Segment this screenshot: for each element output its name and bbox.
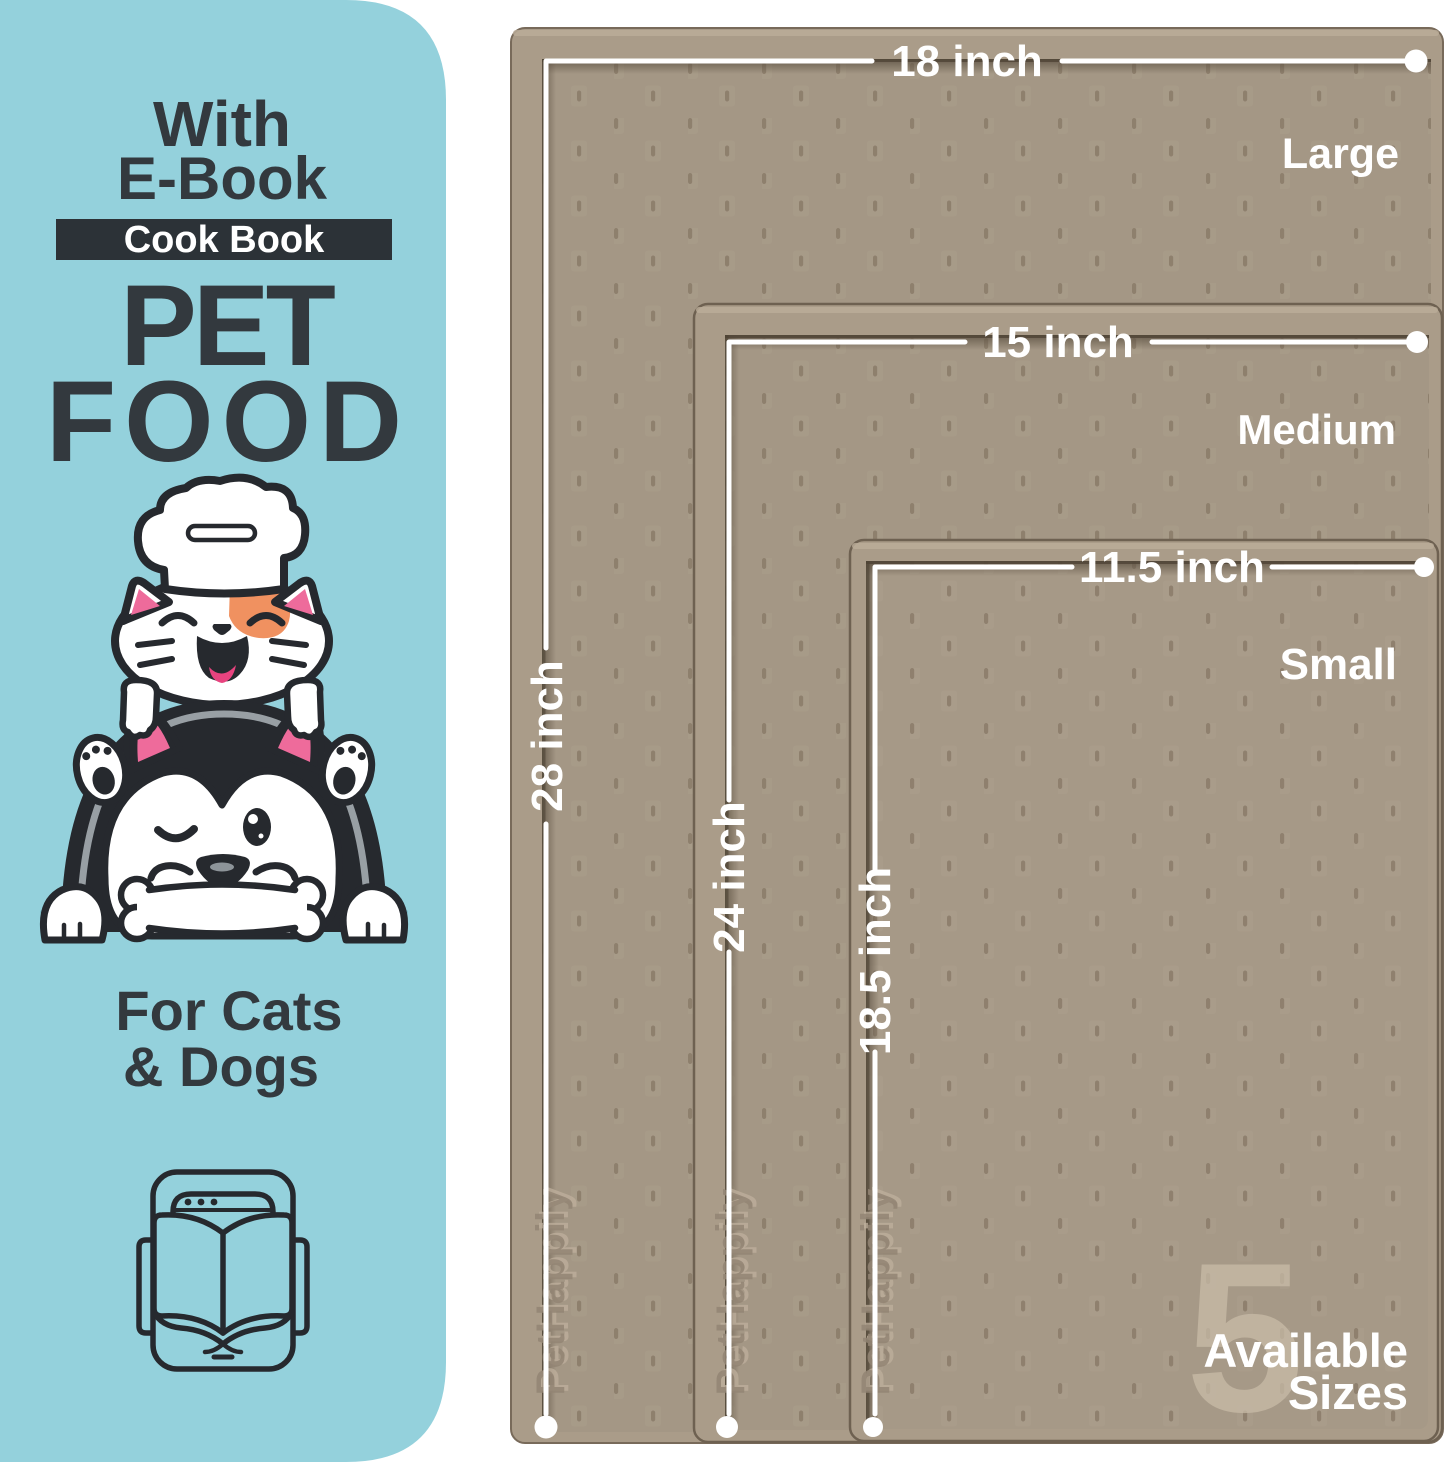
svg-text:PetHappily: PetHappily — [529, 1188, 573, 1395]
svg-text:Cook Book: Cook Book — [124, 219, 325, 261]
svg-text:Small: Small — [1280, 640, 1397, 689]
svg-text:FOOD: FOOD — [46, 358, 410, 486]
svg-text:18.5 inch: 18.5 inch — [851, 867, 900, 1055]
svg-text:Sizes: Sizes — [1288, 1366, 1408, 1419]
svg-text:Large: Large — [1282, 130, 1399, 178]
svg-text:& Dogs: & Dogs — [123, 1035, 319, 1098]
svg-text:E-Book: E-Book — [117, 145, 328, 212]
svg-text:15 inch: 15 inch — [982, 318, 1134, 367]
svg-text:11.5 inch: 11.5 inch — [1079, 543, 1265, 592]
svg-text:28 inch: 28 inch — [523, 660, 572, 812]
svg-text:For Cats: For Cats — [115, 979, 342, 1042]
svg-text:24 inch: 24 inch — [705, 801, 754, 953]
svg-text:18 inch: 18 inch — [891, 37, 1043, 86]
svg-text:Medium: Medium — [1237, 406, 1396, 453]
